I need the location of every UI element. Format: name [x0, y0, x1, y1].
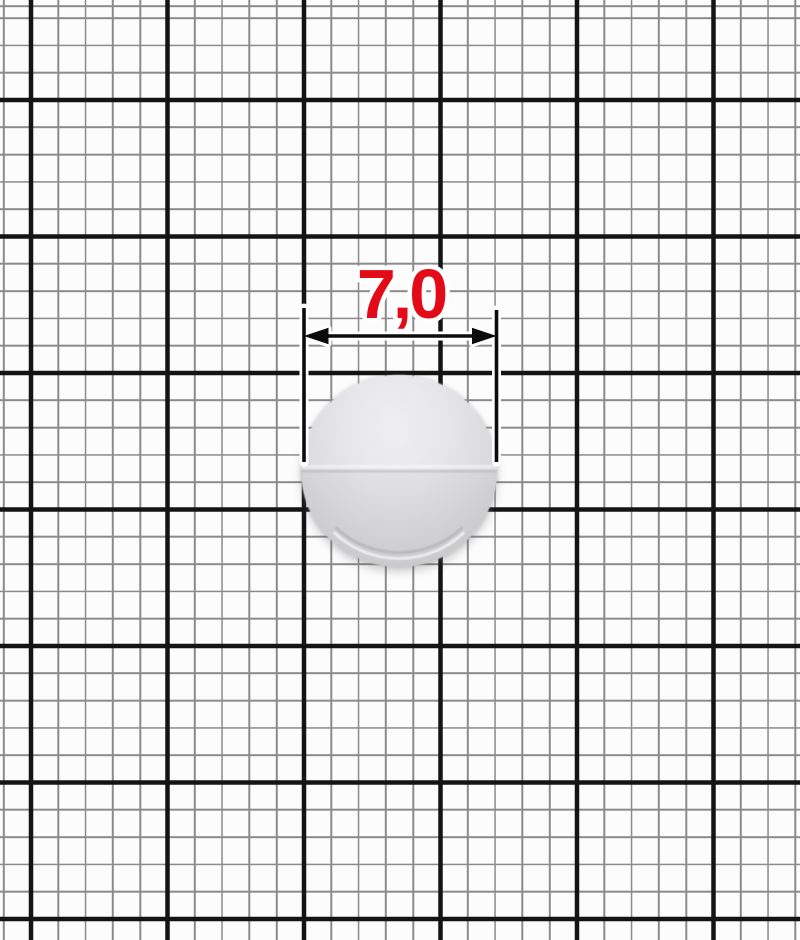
- product-photo: 7,0: [0, 0, 800, 940]
- dimension-label: 7,0: [357, 255, 446, 333]
- dimension-annotation: 7,0: [280, 248, 520, 473]
